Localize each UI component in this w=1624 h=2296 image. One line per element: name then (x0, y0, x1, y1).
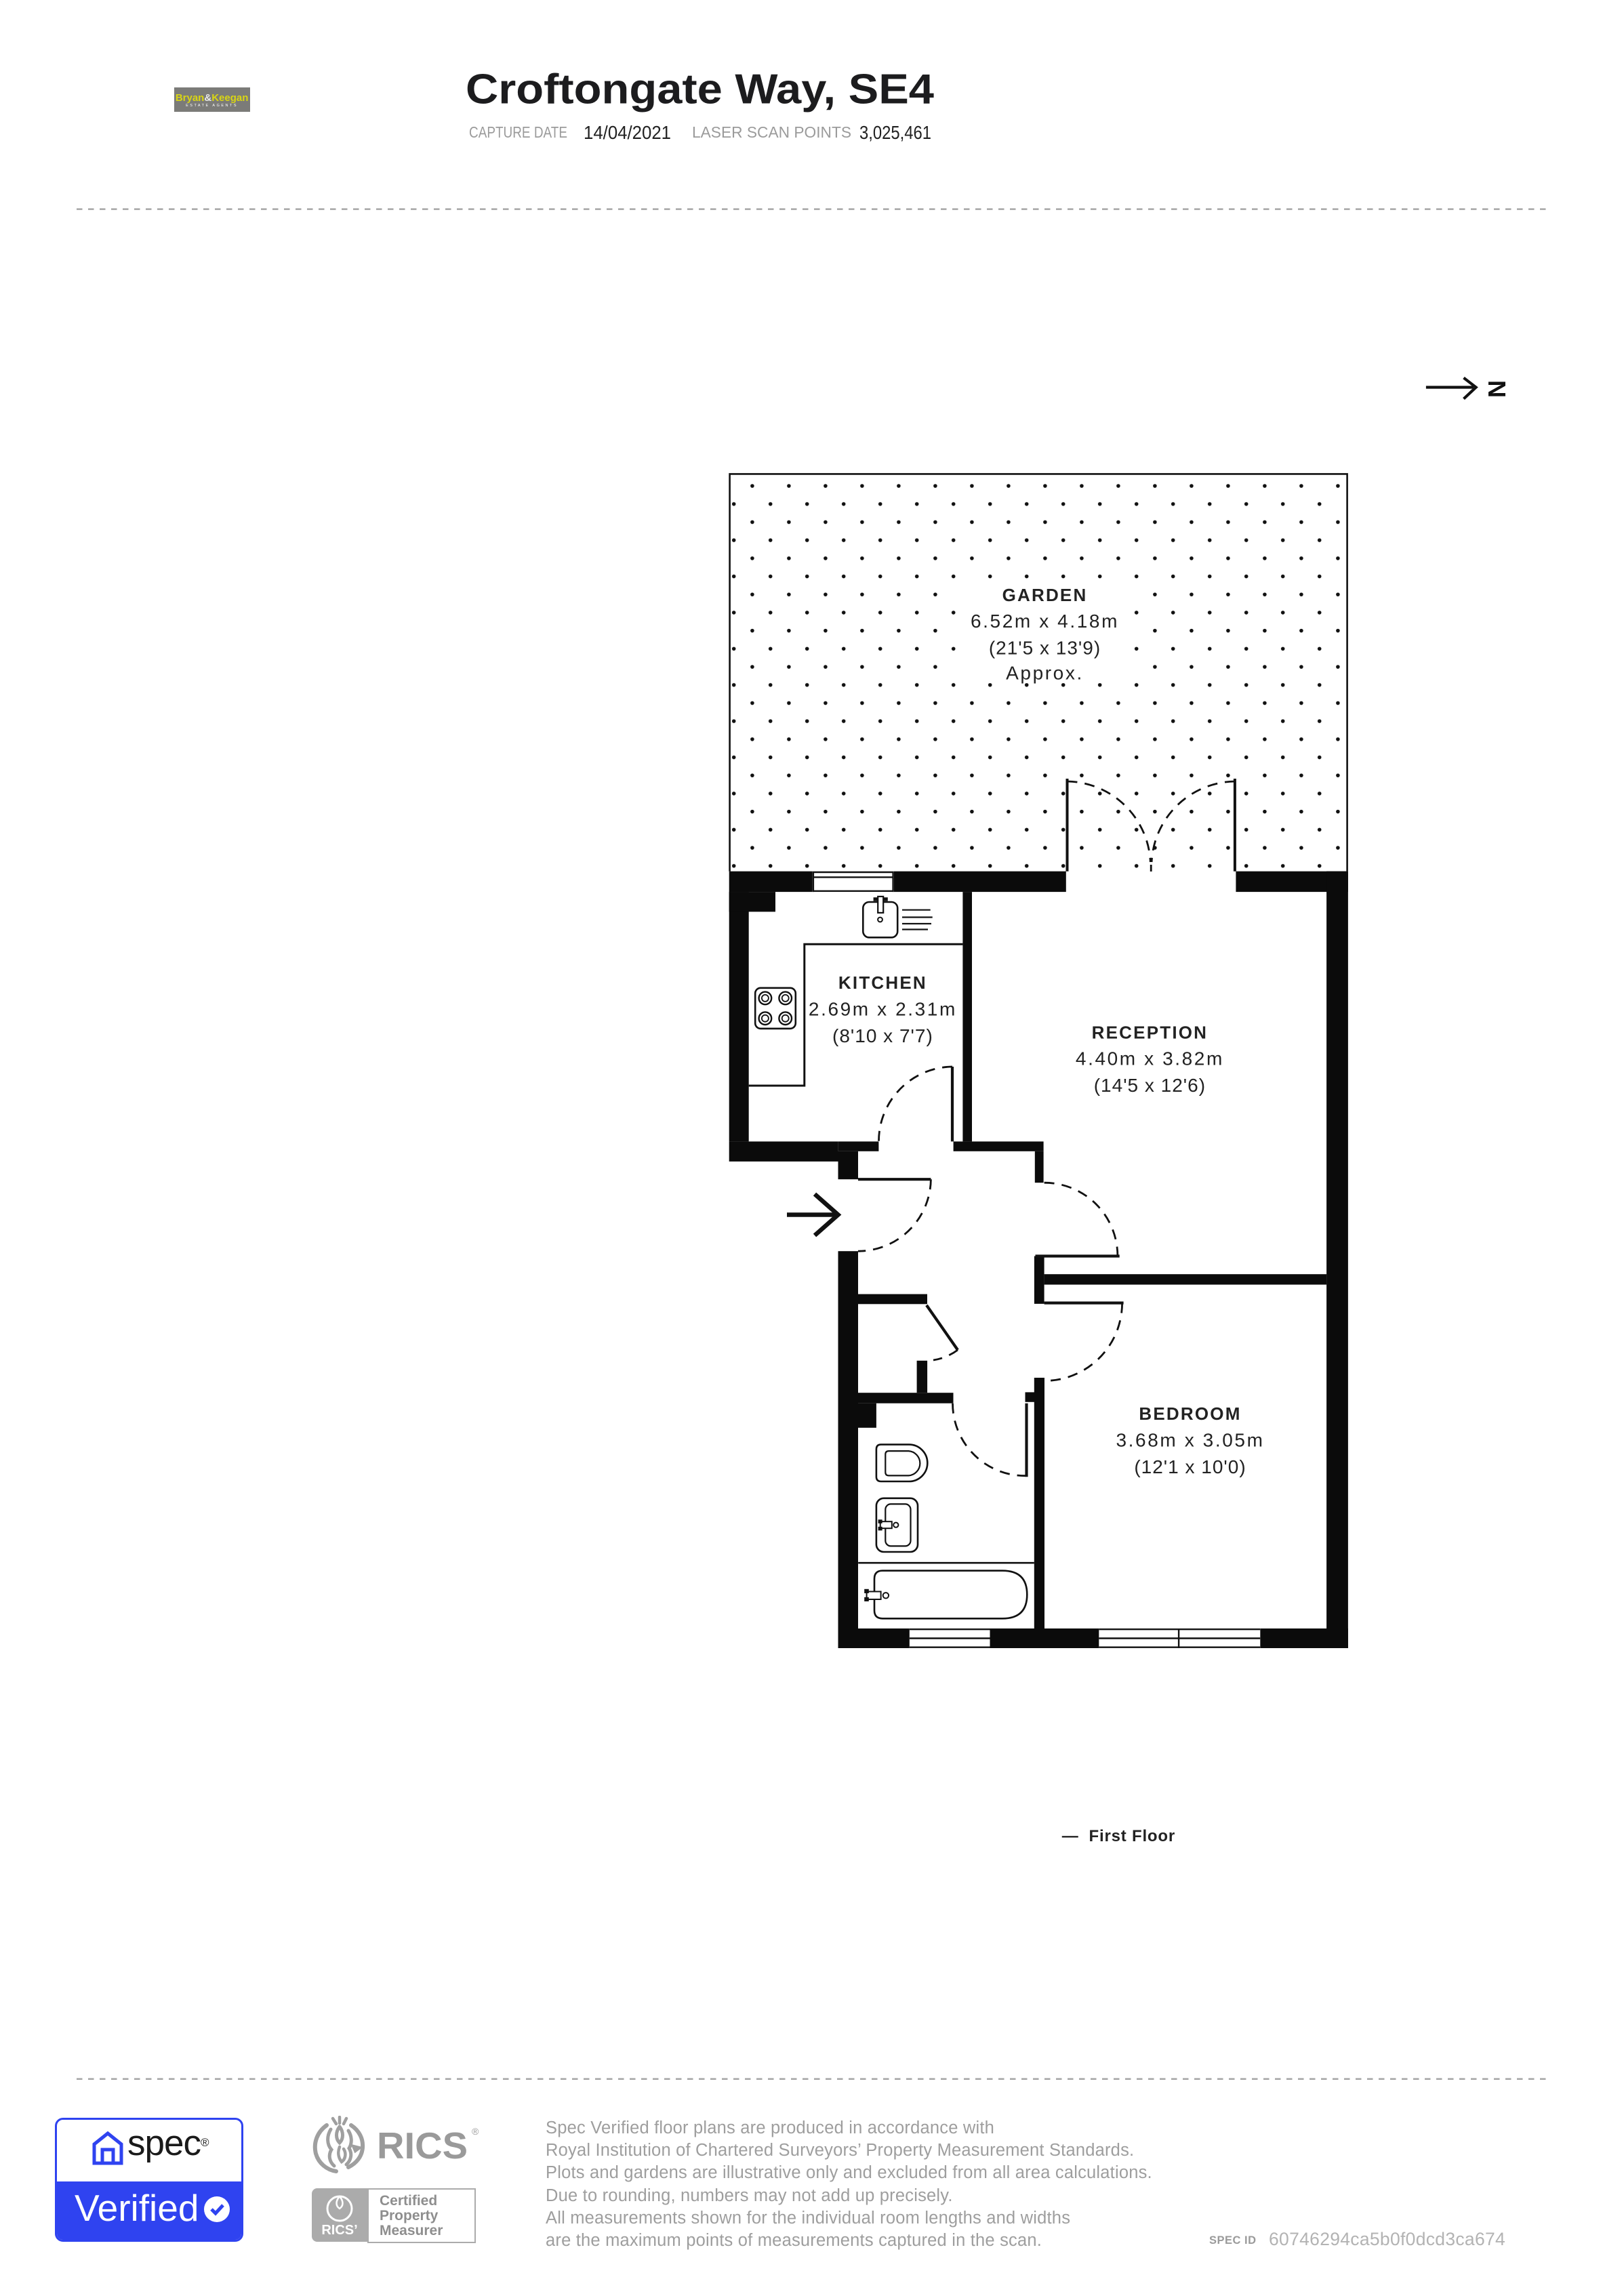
svg-text:4.40m x 3.82m: 4.40m x 3.82m (1076, 1048, 1224, 1069)
svg-text:KITCHEN: KITCHEN (838, 972, 927, 993)
svg-text:GARDEN: GARDEN (1002, 585, 1088, 605)
svg-text:Approx.: Approx. (1006, 662, 1084, 683)
svg-text:(14'5 x 12'6): (14'5 x 12'6) (1094, 1075, 1206, 1096)
svg-text:RICS’: RICS’ (321, 2223, 357, 2238)
svg-text:6.52m x 4.18m: 6.52m x 4.18m (971, 611, 1119, 632)
svg-text:BEDROOM: BEDROOM (1139, 1403, 1241, 1424)
svg-text:(8'10 x 7'7): (8'10 x 7'7) (832, 1025, 933, 1046)
svg-text:(21'5 x 13'9): (21'5 x 13'9) (989, 638, 1101, 659)
svg-text:RICS: RICS (377, 2125, 468, 2167)
svg-text:(12'1 x 10'0): (12'1 x 10'0) (1134, 1456, 1246, 1477)
svg-text:3.68m x 3.05m: 3.68m x 3.05m (1116, 1429, 1265, 1450)
svg-text:®: ® (472, 2126, 479, 2137)
svg-text:2.69m x 2.31m: 2.69m x 2.31m (809, 998, 957, 1019)
svg-text:N: N (1483, 380, 1511, 398)
svg-text:— First Floor: — First Floor (1062, 1827, 1175, 1845)
svg-text:RECEPTION: RECEPTION (1092, 1022, 1208, 1042)
